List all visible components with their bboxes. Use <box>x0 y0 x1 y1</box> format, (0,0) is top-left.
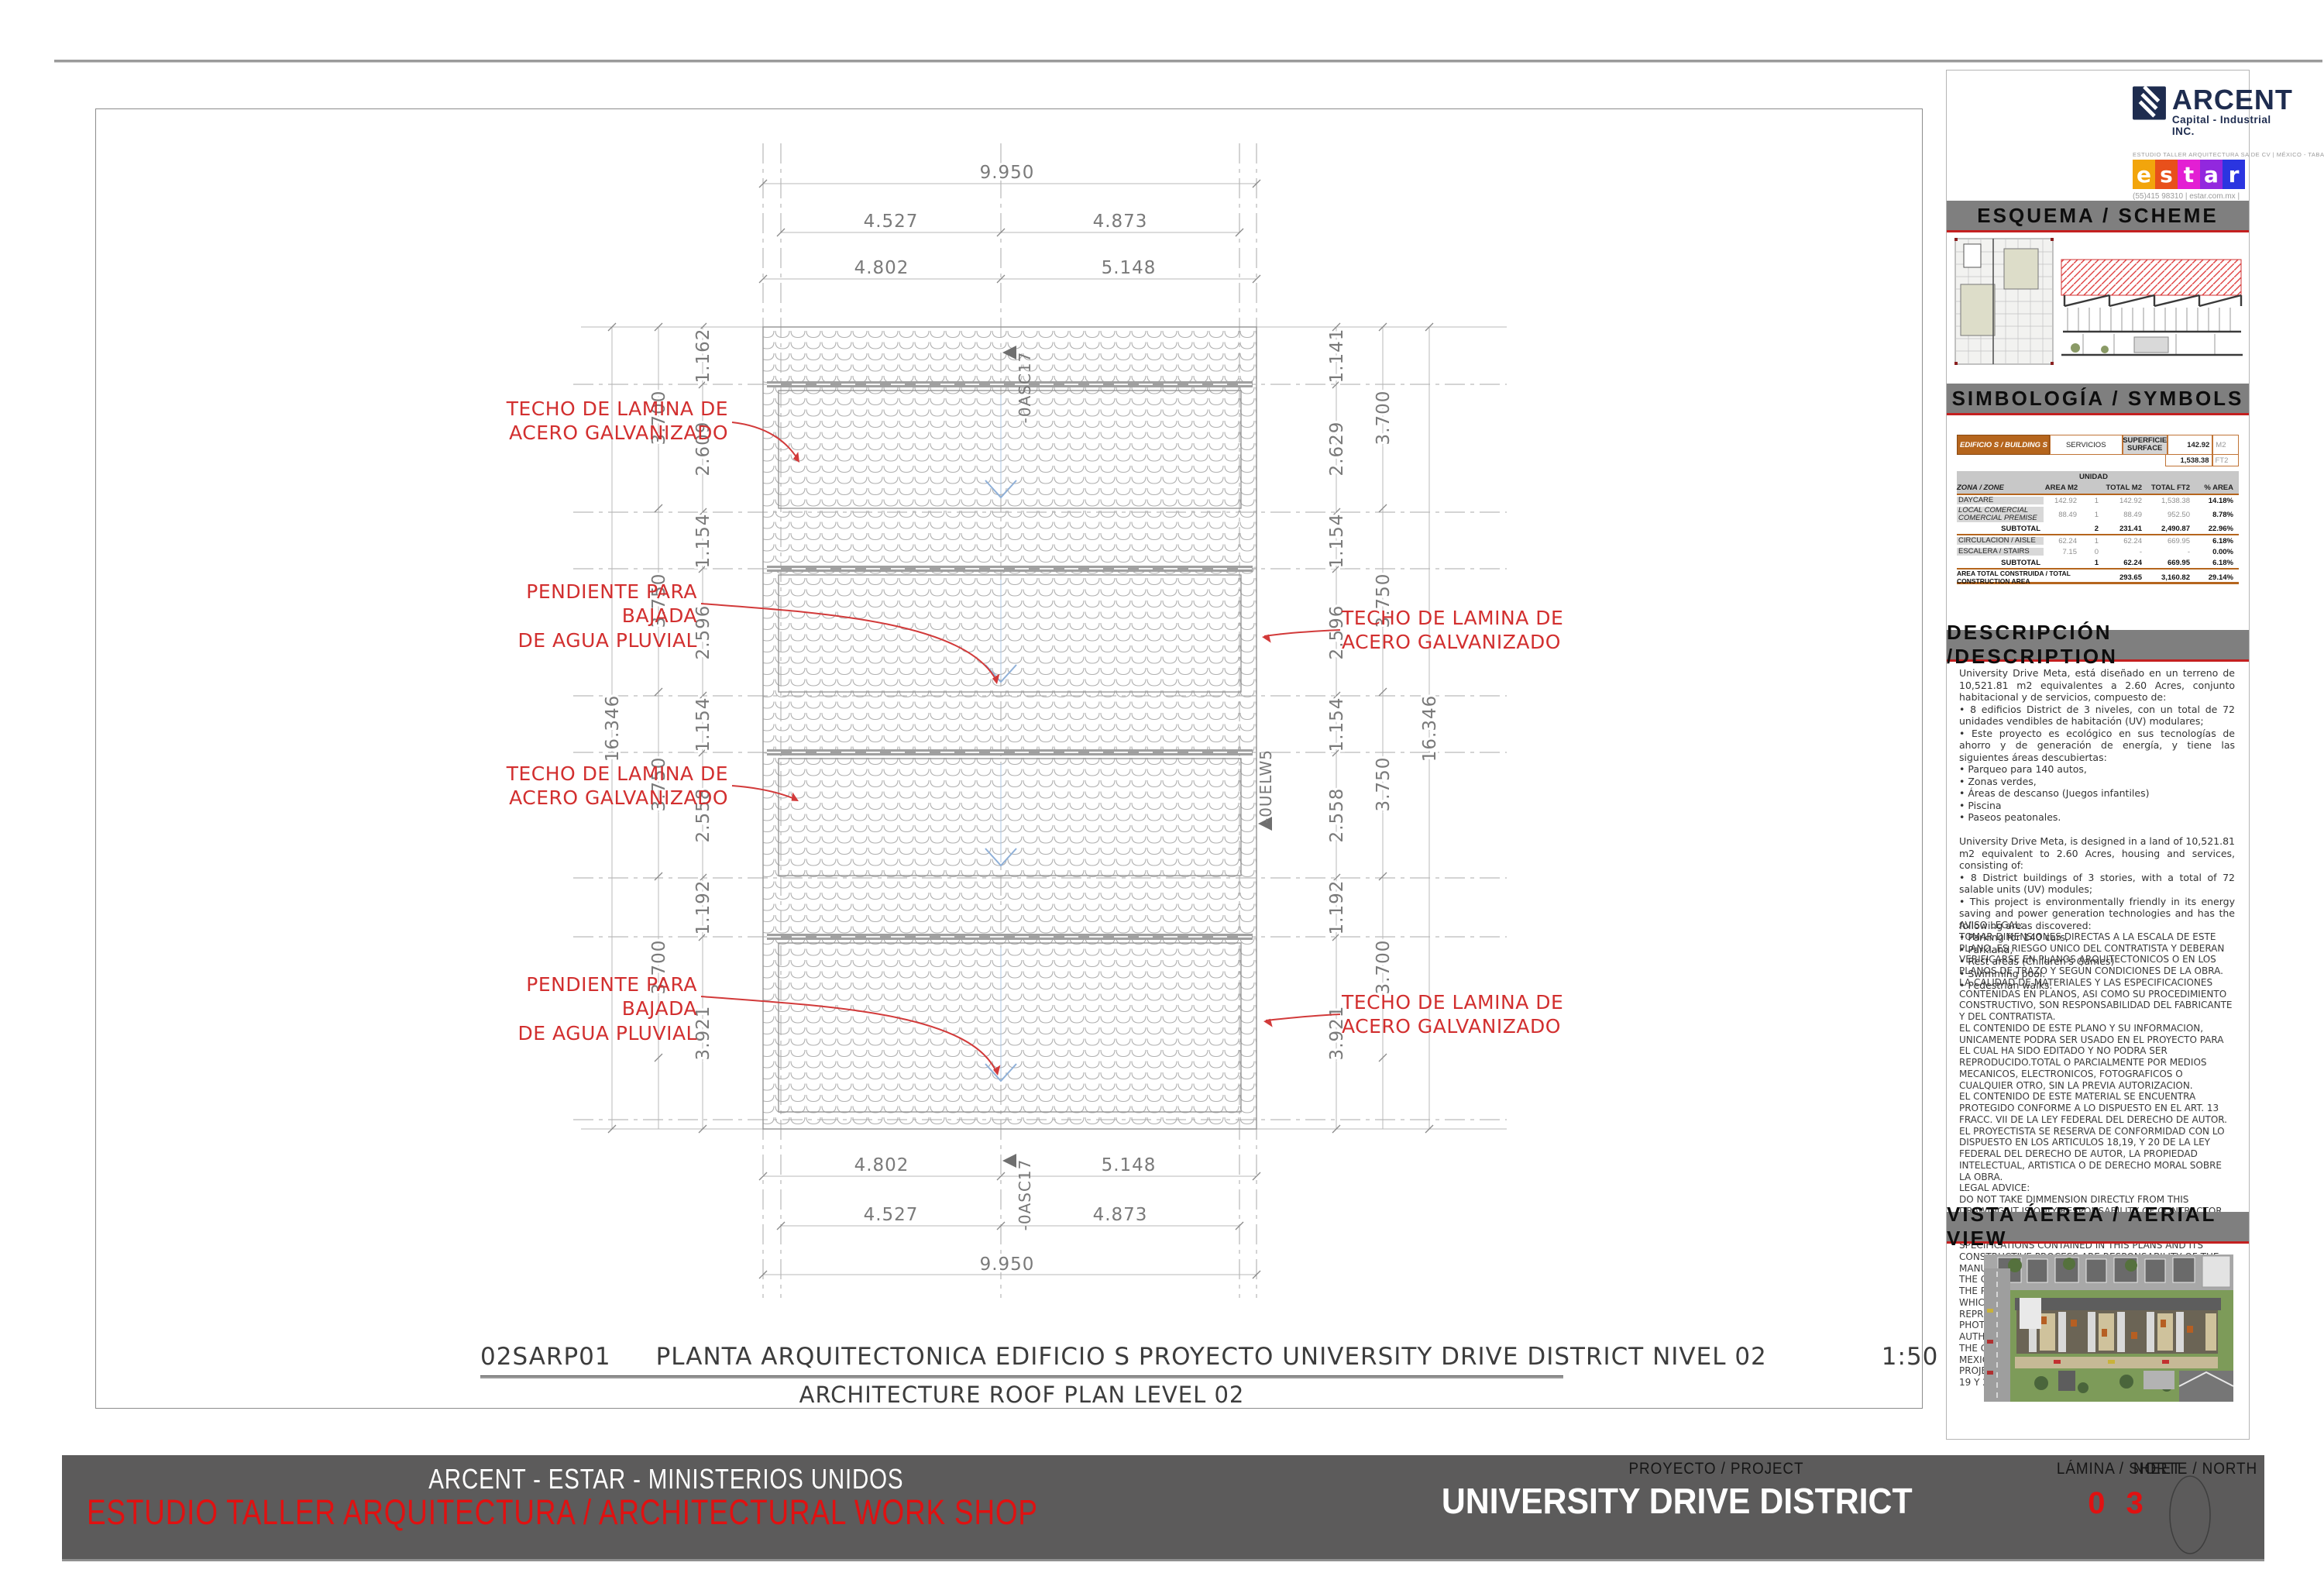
roof-plan-drawing: 9.950 4.527 4.873 4.802 5.148 4.802 5.14… <box>465 70 1549 1340</box>
zone-name: DAYCARE <box>1957 497 2044 504</box>
table-service-cell: SERVICIOS <box>2050 435 2123 455</box>
estar-tile-e: e <box>2133 160 2155 189</box>
dim-left-overall: 16.346 <box>603 695 623 762</box>
architectural-sheet: 9.950 4.527 4.873 4.802 5.148 4.802 5.14… <box>0 0 2324 1590</box>
table-col-area: AREA M2 <box>2044 484 2079 492</box>
esquema-label: ESQUEMA / SCHEME <box>1977 204 2218 228</box>
footer-company-line: ARCENT - ESTAR - MINISTERIOS UNIDOS <box>333 1463 999 1495</box>
dim-bottom-lower-left: 4.527 <box>864 1205 919 1225</box>
subtotal-label: SUBTOTAL <box>1957 525 2044 533</box>
table-col-zone: ZONA / ZONE <box>1957 484 2044 492</box>
dim-left-inner-0: 1.162 <box>693 329 713 384</box>
dim-bottom-upper-left: 4.802 <box>854 1155 909 1175</box>
table-col-pct: % AREA <box>2192 484 2236 492</box>
table-row-escalera: ESCALERA / STAIRS 7.15 0 - - 0.00% <box>1957 546 2239 557</box>
table-ft2-unit: FT2 <box>2212 455 2240 466</box>
zone-name: LOCAL COMERCIAL COMERCIAL PREMISE <box>1957 507 2044 522</box>
vista-label: VISTA ÁEREA / AERIAL VIEW <box>1947 1203 2249 1251</box>
dim-top-overall: 9.950 <box>980 163 1035 183</box>
dim-right-inner-2: 1.154 <box>1327 514 1347 569</box>
scheme-floorplan-thumbnail <box>1953 236 2055 367</box>
note-roof-sheet-1: TECHO DE LAMINA DE ACERO GALVANIZADO <box>496 397 728 446</box>
aerial-view-image <box>1984 1254 2233 1402</box>
note-roof-sheet-4: TECHO DE LAMINA DE ACERO GALVANIZADO <box>1342 990 1574 1039</box>
table-row-local-comercial: LOCAL COMERCIAL COMERCIAL PREMISE 88.49 … <box>1957 506 2239 523</box>
dim-right-inner-4: 1.154 <box>1327 697 1347 752</box>
table-row-circulacion: CIRCULACION / AISLE 62.24 1 62.24 669.95… <box>1957 535 2239 546</box>
table-m2-unit: M2 <box>2212 435 2239 455</box>
dim-right-inner-6: 1.192 <box>1327 880 1347 935</box>
estar-tile-a: a <box>2200 160 2223 189</box>
svg-text:-0UELW5: -0UELW5 <box>1257 749 1275 824</box>
dim-top-lower-right: 5.148 <box>1102 258 1157 278</box>
dim-top-lower-left: 4.802 <box>854 258 909 278</box>
subtotal-label: SUBTOTAL <box>1957 559 2044 567</box>
dim-right-outer-0: 3.700 <box>1373 391 1394 446</box>
estar-tile-s: s <box>2155 160 2178 189</box>
table-row-daycare: DAYCARE 142.92 1 142.92 1,538.38 14.18% <box>1957 495 2239 506</box>
note-roof-sheet-3: TECHO DE LAMINA DE ACERO GALVANIZADO <box>1342 606 1574 655</box>
dim-top-upper-left: 4.527 <box>864 212 919 232</box>
note-roof-sheet-2: TECHO DE LAMINA DE ACERO GALVANIZADO <box>496 762 728 810</box>
descripcion-label: DESCRIPCIÓN /DESCRIPTION <box>1947 621 2249 669</box>
table-building-cell: EDIFICIO S / BUILDING S <box>1957 435 2050 455</box>
dim-left-inner-4: 1.154 <box>693 697 713 752</box>
table-m2-value: 142.92 <box>2168 435 2213 455</box>
zone-name: CIRCULACION / AISLE <box>1957 537 2044 545</box>
plan-title-underline <box>480 1375 1563 1378</box>
symbols-table: EDIFICIO S / BUILDING S SERVICIOS SUPERF… <box>1957 435 2239 584</box>
svg-text:-0ASC17: -0ASC17 <box>1016 352 1034 424</box>
footer-project-label: PROYECTO / PROJECT <box>1588 1460 1844 1478</box>
table-row-subtotal-1: SUBTOTAL 2 231.41 2,490.87 22.96% <box>1957 523 2239 534</box>
dim-bottom-upper-right: 5.148 <box>1102 1155 1157 1175</box>
note-rain-slope-1: PENDIENTE PARA BAJADA DE AGUA PLUVIAL <box>465 580 697 652</box>
footer-sheet-number: 0 3 <box>2076 1486 2161 1521</box>
plan-subtitle: ARCHITECTURE ROOF PLAN LEVEL 02 <box>480 1382 1563 1408</box>
top-rule <box>54 60 2322 63</box>
estar-topline: ESTUDIO TALLER ARQUITECTURA SA DE CV | M… <box>2133 151 2246 158</box>
table-col-total-m2: TOTAL M2 <box>2101 484 2144 492</box>
title-block-panel: ARCENT Capital - Industrial INC. ESTUDIO… <box>1946 70 2250 1440</box>
plan-title-code: 02SARP01 <box>480 1343 611 1371</box>
level-marker-right: -0UELW5 <box>1257 749 1275 831</box>
dim-top-upper-right: 4.873 <box>1093 212 1148 232</box>
dim-right-inner-0: 1.141 <box>1327 329 1347 384</box>
plan-title-block: 02SARP01 PLANTA ARQUITECTONICA EDIFICIO … <box>480 1343 1565 1408</box>
dim-right-outer-2: 3.750 <box>1373 757 1394 812</box>
arcent-name: ARCENT <box>2172 86 2294 114</box>
table-surface-cell: SUPERFICIE SURFACE <box>2123 435 2168 455</box>
estar-tile-r: r <box>2223 160 2245 189</box>
footer-studio-line: ESTUDIO TALLER ARQUITECTURA / ARCHITECTU… <box>87 1492 1246 1533</box>
simbologia-label: SIMBOLOGÍA / SYMBOLS <box>1952 387 2244 411</box>
section-header-vista: VISTA ÁEREA / AERIAL VIEW <box>1947 1212 2249 1244</box>
section-header-descripcion: DESCRIPCIÓN /DESCRIPTION <box>1947 630 2249 662</box>
table-row-subtotal-2: SUBTOTAL 1 62.24 669.95 6.18% <box>1957 557 2239 568</box>
section-header-simbologia: SIMBOLOGÍA / SYMBOLS <box>1947 384 2249 415</box>
scheme-section-thumbnail <box>2060 256 2244 359</box>
estar-tiles: e s t a r <box>2133 160 2246 189</box>
north-compass-icon <box>2165 1472 2215 1557</box>
note-rain-slope-2: PENDIENTE PARA BAJADA DE AGUA PLUVIAL <box>465 972 697 1045</box>
arcent-logo: ARCENT Capital - Industrial INC. <box>2133 86 2294 137</box>
dim-bottom-overall: 9.950 <box>980 1254 1035 1275</box>
svg-text:-0ASC17: -0ASC17 <box>1016 1159 1034 1231</box>
level-marker-bottom: -0ASC17 <box>1002 1154 1034 1230</box>
table-col-unidad: UNIDAD <box>2079 473 2101 481</box>
section-header-esquema: ESQUEMA / SCHEME <box>1947 201 2249 232</box>
total-label: AREA TOTAL CONSTRUIDA / TOTAL CONSTRUCTI… <box>1957 570 2101 585</box>
dim-right-overall: 16.346 <box>1420 695 1440 762</box>
arcent-logo-icon <box>2133 86 2166 120</box>
dim-bottom-lower-right: 4.873 <box>1093 1205 1148 1225</box>
estar-tile-t: t <box>2178 160 2200 189</box>
plan-title-scale: 1:50 <box>1882 1343 1939 1371</box>
table-ft2-value: 1,538.38 <box>2165 455 2212 466</box>
footer-bar: ARCENT - ESTAR - MINISTERIOS UNIDOS ESTU… <box>62 1455 2264 1561</box>
dim-right-inner-5: 2.558 <box>1327 788 1347 843</box>
dim-left-inner-2: 1.154 <box>693 514 713 569</box>
dim-left-inner-6: 1.192 <box>693 880 713 935</box>
table-row-total: AREA TOTAL CONSTRUIDA / TOTAL CONSTRUCTI… <box>1957 570 2239 582</box>
table-col-total-ft2: TOTAL FT2 <box>2144 484 2192 492</box>
dim-right-outer-3: 3.700 <box>1373 940 1394 995</box>
arcent-tagline: Capital - Industrial INC. <box>2172 114 2294 137</box>
dim-right-inner-1: 2.629 <box>1327 422 1347 477</box>
footer-project-name: UNIVERSITY DRIVE DISTRICT <box>1406 1480 1948 1522</box>
zone-name: ESCALERA / STAIRS <box>1957 548 2044 556</box>
plan-title-text: PLANTA ARQUITECTONICA EDIFICIO S PROYECT… <box>656 1343 1767 1371</box>
